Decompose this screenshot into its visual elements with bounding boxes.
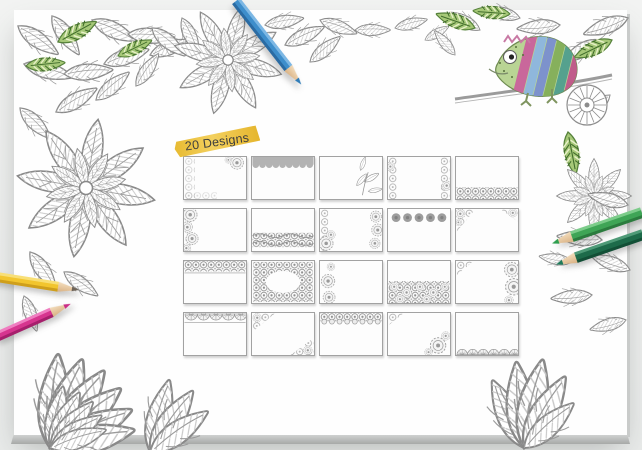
design-thumbnail	[387, 156, 451, 200]
design-thumbnail	[183, 208, 247, 252]
design-thumbnail	[319, 208, 383, 252]
designs-grid	[183, 156, 519, 356]
design-thumbnail	[387, 260, 451, 304]
design-thumbnail	[455, 208, 519, 252]
design-thumbnail	[455, 156, 519, 200]
design-thumbnail	[251, 312, 315, 356]
design-thumbnail	[251, 208, 315, 252]
design-thumbnail	[455, 312, 519, 356]
design-thumbnail	[387, 208, 451, 252]
design-thumbnail	[387, 312, 451, 356]
design-thumbnail	[319, 260, 383, 304]
design-thumbnail	[183, 156, 247, 200]
design-thumbnail	[251, 156, 315, 200]
design-thumbnail	[183, 312, 247, 356]
design-thumbnail	[183, 260, 247, 304]
product-mockup: 20 Designs	[0, 0, 642, 450]
design-thumbnail	[319, 156, 383, 200]
design-thumbnail	[455, 260, 519, 304]
design-thumbnail	[251, 260, 315, 304]
design-thumbnail	[319, 312, 383, 356]
